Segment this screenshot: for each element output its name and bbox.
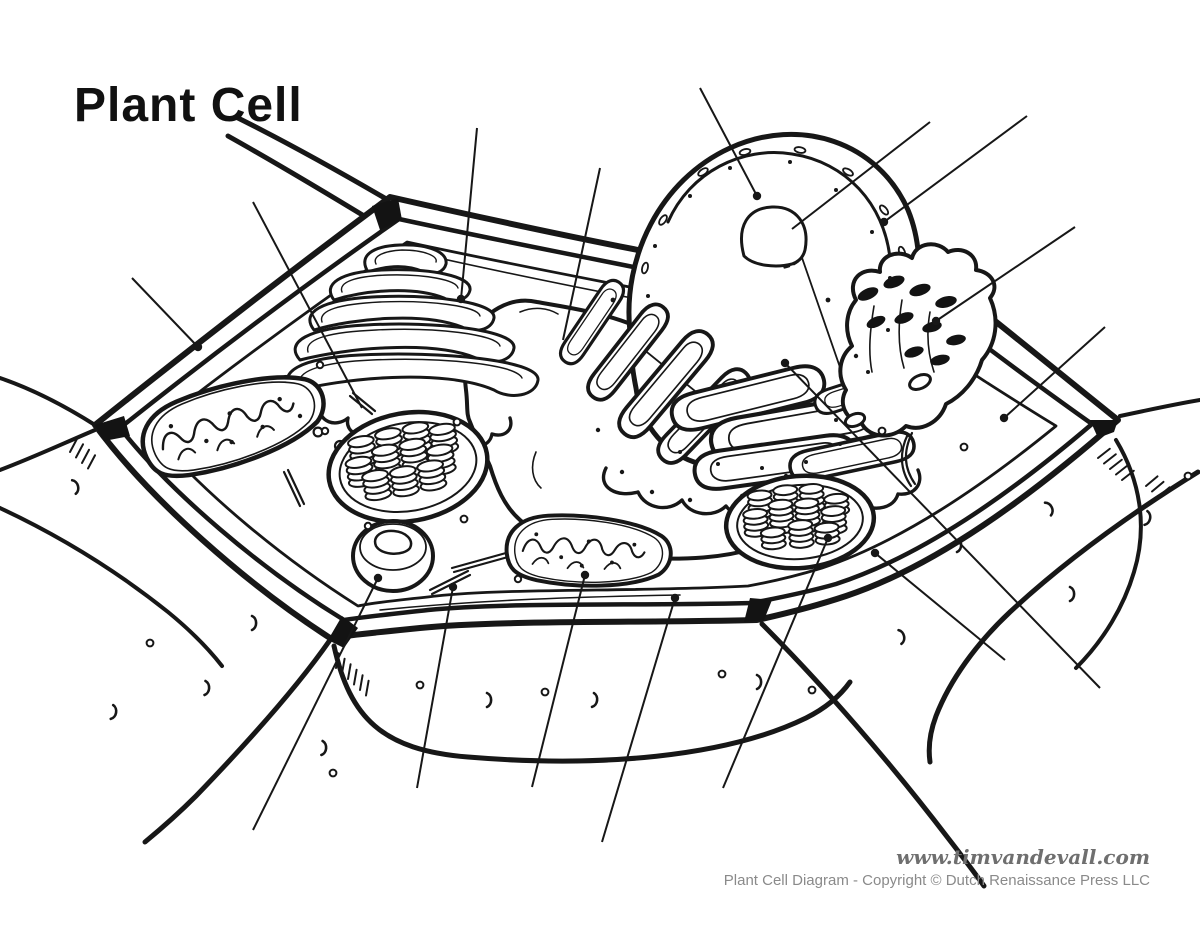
ribosome-dot — [611, 298, 616, 303]
peroxisome — [353, 521, 433, 591]
texture-dot — [809, 687, 816, 694]
envelope-dot — [716, 462, 720, 466]
hatch-stroke — [1104, 454, 1116, 463]
leader-dot-cytoplasm — [1000, 414, 1008, 422]
leader-dot-cell-wall — [194, 343, 202, 351]
leader-cell-wall — [132, 278, 198, 347]
ribosome-dot — [688, 498, 692, 502]
texture-curl — [205, 681, 210, 695]
texture-curl — [321, 741, 326, 755]
hatch-stroke — [76, 444, 83, 457]
leader-dot-mitochondrion — [581, 571, 589, 579]
envelope-dot — [688, 194, 692, 198]
hatch-stroke — [342, 659, 345, 674]
leader-dot-cell-membrane — [671, 594, 679, 602]
envelope-dot — [834, 418, 838, 422]
envelope-dot — [886, 328, 890, 332]
ribosome-dot — [650, 490, 654, 494]
texture-dot — [719, 671, 726, 678]
envelope-dot — [804, 460, 808, 464]
plant-cell-diagram — [0, 0, 1200, 927]
ribosome-dot — [322, 428, 328, 434]
envelope-dot — [834, 188, 838, 192]
leader-dot-golgi-apparatus — [457, 295, 465, 303]
leader-dot-smooth-endoplasmic-reticulum — [932, 317, 940, 325]
leader-cell-membrane — [602, 598, 675, 842]
envelope-dot — [678, 450, 682, 454]
ribosome-dot — [317, 362, 323, 368]
ribosome-dot — [298, 414, 302, 418]
hatch-stroke — [1116, 465, 1128, 474]
envelope-dot — [888, 276, 892, 280]
worksheet-page: Plant Cell www.timvandevall.com Plant Ce… — [0, 0, 1200, 927]
texture-curl — [1045, 501, 1055, 515]
ribosome-dot — [961, 444, 968, 451]
envelope-dot — [866, 370, 870, 374]
copyright-text: Plant Cell Diagram - Copyright © Dutch R… — [724, 872, 1150, 889]
hatch-stroke — [82, 450, 89, 463]
leader-dot-rough-endoplasmic-reticulum — [781, 359, 789, 367]
texture-curl — [757, 675, 761, 689]
texture-curl — [1070, 587, 1074, 601]
envelope-dot — [728, 166, 732, 170]
texture-curl — [252, 616, 256, 630]
envelope-dot — [870, 230, 874, 234]
leader-dot-nuclear-envelope — [880, 218, 888, 226]
texture-curl — [111, 705, 117, 720]
texture-dot — [147, 640, 154, 647]
ribosome-dot — [596, 428, 600, 432]
ribosome-dot — [740, 494, 744, 498]
ribosome-dot — [854, 354, 858, 358]
leader-dot-peroxisome — [374, 574, 382, 582]
ribosome-dot — [515, 576, 521, 582]
texture-curl — [72, 479, 80, 494]
texture-dot — [330, 770, 337, 777]
ribosome-dot — [461, 516, 468, 523]
texture-curl — [899, 629, 906, 644]
leader-dot-granum — [824, 534, 832, 542]
texture-curl — [592, 693, 598, 707]
page-title: Plant Cell — [74, 78, 303, 133]
texture-dot — [417, 682, 424, 689]
envelope-dot — [653, 244, 657, 248]
footer: www.timvandevall.com Plant Cell Diagram … — [724, 845, 1150, 889]
envelope-dot — [788, 160, 792, 164]
envelope-dot — [760, 466, 764, 470]
hatch-stroke — [360, 675, 363, 690]
ribosome-dot — [620, 470, 624, 474]
neighbor-wall — [145, 640, 330, 842]
ribosome-dot — [365, 523, 371, 529]
neighbor-wall — [334, 646, 850, 761]
neighbor-wall — [1076, 440, 1141, 668]
envelope-dot — [646, 294, 650, 298]
envelope-dot — [838, 442, 842, 446]
leader-dot-nucleus — [753, 192, 761, 200]
hatch-stroke — [366, 681, 369, 696]
hatch-stroke — [1098, 449, 1110, 458]
leader-dot-cytoskeleton-b — [449, 583, 457, 591]
texture-curl — [487, 693, 491, 707]
leader-nuclear-envelope — [884, 116, 1027, 222]
hatch-stroke — [348, 664, 351, 679]
hatch-stroke — [1146, 476, 1157, 486]
nucleolus — [742, 207, 806, 266]
leader-dot-chloroplast — [871, 549, 879, 557]
texture-curl — [1145, 511, 1152, 526]
neighbor-wall — [0, 508, 222, 666]
hatch-stroke — [1152, 482, 1163, 492]
texture-dot — [542, 689, 549, 696]
ribosome-dot — [454, 419, 461, 426]
texture-dot — [1185, 473, 1192, 480]
hatch-stroke — [88, 455, 95, 468]
neighbor-wall — [0, 378, 95, 425]
ribosome-dot — [826, 298, 831, 303]
hatch-stroke — [1110, 460, 1122, 469]
ribosome-dot — [784, 474, 788, 478]
watermark-url: www.timvandevall.com — [724, 845, 1150, 869]
ribosome-dot — [879, 428, 886, 435]
hatch-stroke — [354, 670, 357, 685]
neighbor-wall — [1120, 400, 1200, 416]
